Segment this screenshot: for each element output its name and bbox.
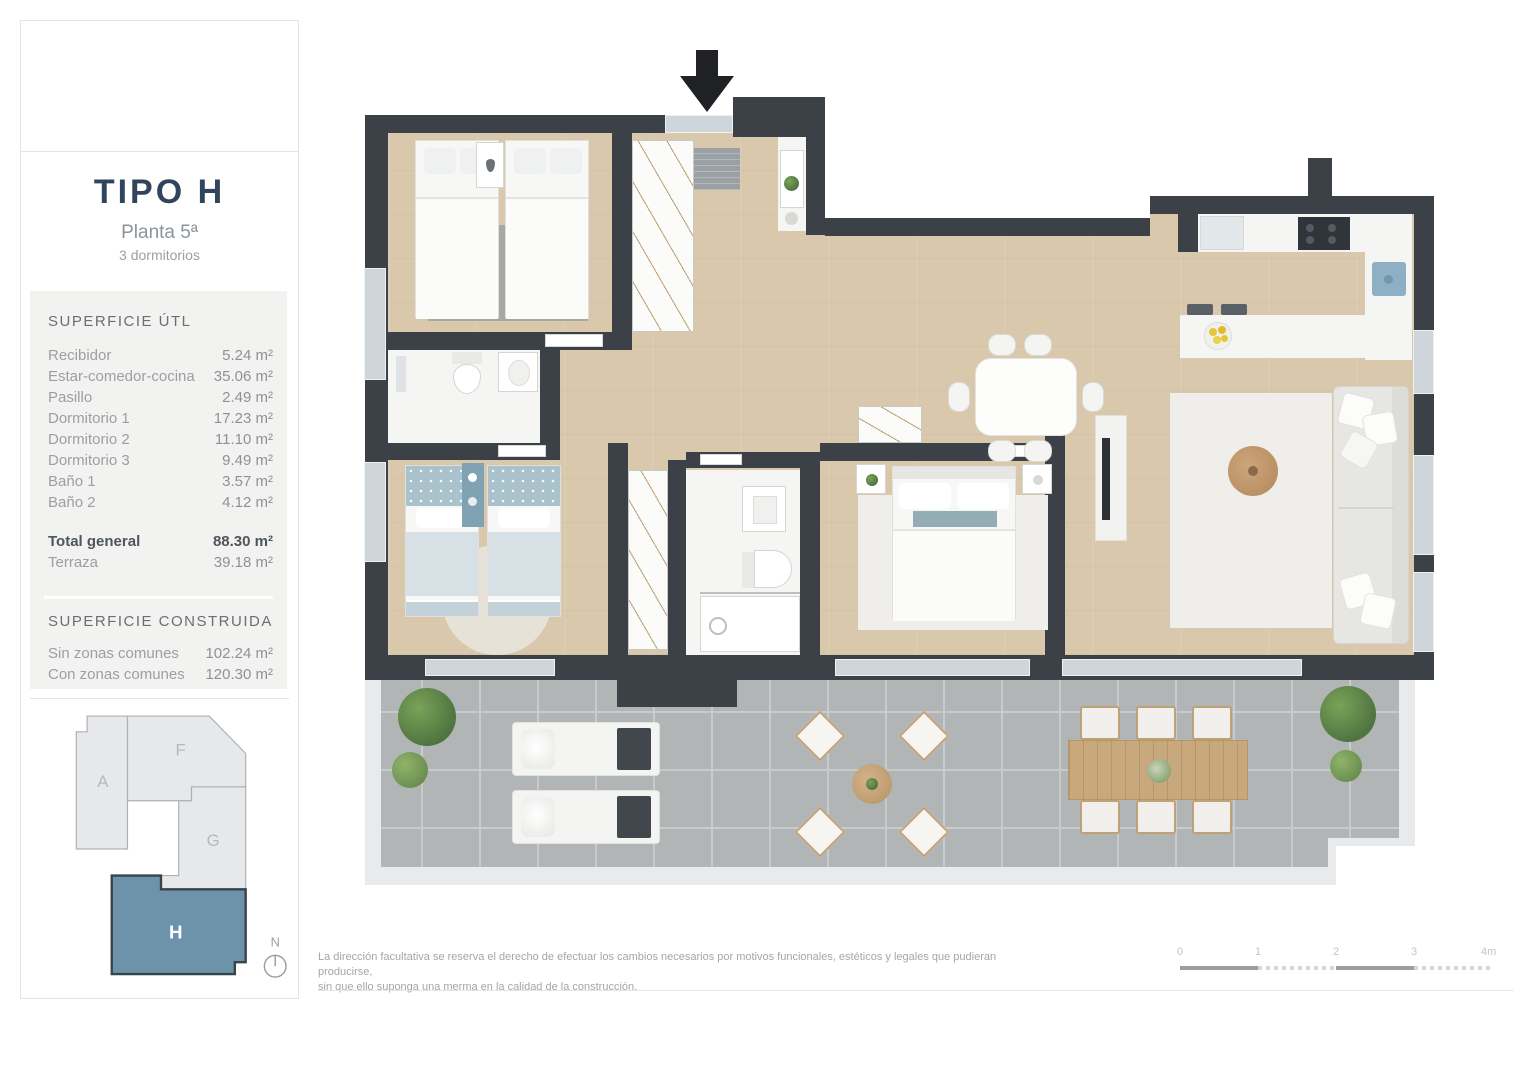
scale-tick-label: 2	[1333, 946, 1339, 958]
towel-rail	[396, 356, 406, 392]
nightstand	[1022, 464, 1052, 494]
wall	[612, 133, 632, 350]
wall	[825, 218, 1150, 236]
chimney-block	[1308, 158, 1332, 198]
single-bed	[505, 140, 589, 318]
washbasin	[742, 486, 786, 532]
terrace-dining-chair	[1192, 706, 1232, 740]
toilet-tank	[452, 352, 482, 364]
nightstand	[856, 464, 886, 494]
wall	[668, 460, 686, 655]
shower-tray	[700, 596, 800, 652]
page-title: TIPO H	[21, 173, 298, 212]
building-keyplan: A F G H N	[30, 699, 289, 997]
hall-wardrobe	[858, 406, 922, 443]
scale-tick-label: 3	[1411, 946, 1417, 958]
double-bed	[892, 466, 1016, 620]
wardrobe	[632, 140, 694, 332]
toilet-tank	[742, 552, 754, 588]
terraza-row: Terraza39.18 m²	[48, 552, 273, 573]
area-row: Pasillo2.49 m²	[48, 387, 273, 408]
superficie-util-rows: Recibidor5.24 m² Estar-comedor-cocina35.…	[48, 345, 273, 573]
terrace-door	[1062, 659, 1302, 676]
dining-chair	[1082, 382, 1104, 412]
exterior-cut	[1150, 133, 1434, 196]
total-row: Total general88.30 m²	[48, 531, 273, 552]
floor-subtitle: Planta 5ª	[21, 222, 298, 244]
wall	[1150, 196, 1434, 214]
wall	[608, 443, 628, 655]
terrace-notch	[1328, 838, 1415, 885]
door-leaf	[545, 334, 603, 347]
scale-tick-label: 1	[1255, 946, 1261, 958]
wall	[1178, 214, 1198, 252]
washbasin	[498, 352, 538, 392]
terrace-dining-chair	[1192, 800, 1232, 834]
scale-segment	[1258, 966, 1336, 970]
area-row: Baño 24.12 m²	[48, 492, 273, 513]
block-g-label: G	[207, 831, 220, 850]
terrace-dining-chair	[1080, 706, 1120, 740]
sun-lounger	[512, 790, 660, 844]
terrace-dining-table	[1068, 740, 1248, 800]
window	[425, 659, 555, 676]
block-f-label: F	[176, 740, 186, 759]
window	[1413, 455, 1434, 555]
block-g-shape	[161, 787, 246, 889]
scale-segment	[1336, 966, 1414, 970]
info-sidebar: TIPO H Planta 5ª 3 dormitorios SUPERFICI…	[20, 20, 299, 999]
wall	[617, 655, 737, 707]
window	[1413, 330, 1434, 394]
wall	[733, 97, 825, 137]
terrace-plant	[1320, 686, 1376, 742]
superficie-construida-heading: SUPERFICIE CONSTRUIDA	[48, 613, 273, 630]
terrace-plant	[398, 688, 456, 746]
single-bed	[487, 465, 561, 617]
scale-segment	[1414, 966, 1492, 970]
entry-door-sill	[665, 115, 733, 133]
terrace-dining-chair	[1136, 800, 1176, 834]
dining-chair	[1024, 440, 1052, 462]
dining-table	[975, 358, 1077, 436]
area-row: Dormitorio 117.23 m²	[48, 408, 273, 429]
keyplan-section: A F G H N	[30, 698, 289, 998]
nightstand	[462, 463, 484, 527]
cooktop	[1298, 217, 1350, 250]
scale-tick-label: 0	[1177, 946, 1183, 958]
window	[1413, 572, 1434, 652]
exterior-cut	[825, 133, 1150, 218]
fridge	[1200, 216, 1244, 250]
entry-arrow-icon	[672, 50, 742, 114]
footer-rule	[318, 990, 1514, 991]
terrace-grass	[1330, 750, 1362, 782]
legend-divider	[44, 596, 273, 599]
sun-lounger	[512, 722, 660, 776]
superficie-util-heading: SUPERFICIE ÚTL	[48, 313, 192, 330]
area-row: Recibidor5.24 m²	[48, 345, 273, 366]
dining-chair	[948, 382, 970, 412]
terrace-dining-chair	[1136, 706, 1176, 740]
sofa	[1333, 386, 1409, 644]
hall-closet	[628, 470, 668, 650]
bar-stool	[1187, 304, 1213, 315]
area-row: Estar-comedor-cocina35.06 m²	[48, 366, 273, 387]
wall	[806, 137, 825, 235]
area-row: Dormitorio 211.10 m²	[48, 429, 273, 450]
area-row: Dormitorio 39.49 m²	[48, 450, 273, 471]
wall	[800, 460, 820, 655]
scale-tick-label: 4m	[1481, 946, 1496, 958]
dining-chair	[1024, 334, 1052, 356]
terrace-curb	[365, 867, 1415, 885]
dining-chair	[988, 440, 1016, 462]
wall	[365, 115, 388, 675]
area-row: Con zonas comunes120.30 m²	[48, 664, 273, 685]
terrace-dining-chair	[1080, 800, 1120, 834]
stool	[785, 212, 798, 225]
wall	[365, 115, 665, 133]
superficie-construida-rows: Sin zonas comunes102.24 m² Con zonas com…	[48, 643, 273, 685]
shower-glass	[700, 592, 800, 594]
plant	[784, 176, 799, 191]
area-row: Baño 13.57 m²	[48, 471, 273, 492]
bar-stool	[1221, 304, 1247, 315]
tv-console	[1095, 415, 1127, 541]
sink-mat	[1372, 262, 1406, 296]
sidebar-header-box	[21, 21, 298, 152]
disclaimer-text: La dirección facultativa se reserva el d…	[318, 950, 998, 995]
door-leaf	[498, 445, 546, 457]
window	[364, 268, 386, 380]
window	[364, 462, 386, 562]
floorplan-sheet: TIPO H Planta 5ª 3 dormitorios SUPERFICI…	[0, 0, 1536, 1088]
terrace-side-table	[852, 764, 892, 804]
door-leaf	[700, 454, 742, 465]
north-label: N	[271, 934, 280, 949]
lemon-bowl	[1204, 322, 1232, 350]
north-compass-icon: N	[264, 934, 286, 977]
terrace-grass	[392, 752, 428, 788]
coffee-table	[1228, 446, 1278, 496]
bedside-art	[476, 142, 504, 188]
living-rug	[1170, 393, 1332, 628]
block-a-label: A	[97, 772, 109, 791]
window	[835, 659, 1030, 676]
bedrooms-subtitle: 3 dormitorios	[21, 247, 298, 263]
toilet	[754, 550, 792, 588]
block-h-label: H	[169, 922, 183, 943]
scale-segment	[1180, 966, 1258, 970]
dining-chair	[988, 334, 1016, 356]
scale-bar: 0 1 2 3 4m	[1180, 946, 1496, 978]
terrace-curb	[365, 680, 381, 885]
area-row: Sin zonas comunes102.24 m²	[48, 643, 273, 664]
areas-legend: SUPERFICIE ÚTL Recibidor5.24 m² Estar-co…	[30, 291, 287, 689]
